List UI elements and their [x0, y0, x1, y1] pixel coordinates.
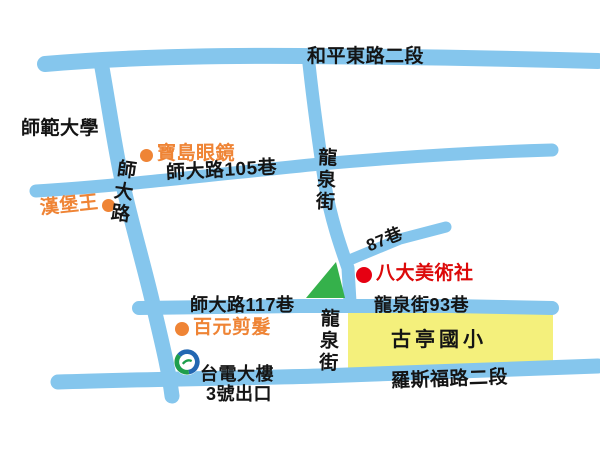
haircut-dot-icon	[175, 322, 189, 336]
road-label-lane117: 師大路117巷	[190, 296, 295, 315]
road-label-roosevelt: 羅斯福路二段	[391, 368, 509, 392]
road-label-longquan-south-vertical: 龍泉街	[319, 309, 341, 375]
map-graphics	[0, 0, 600, 450]
park-triangle	[306, 262, 345, 298]
place-label-metro-station: 台電大樓	[200, 365, 274, 384]
road-shida	[101, 62, 172, 396]
place-label-destination: 八大美術社	[376, 264, 474, 284]
place-label-haircut: 百元剪髮	[193, 318, 271, 338]
place-label-school: 古亭國小	[391, 330, 487, 351]
road-label-longquan93: 龍泉街93巷	[374, 296, 469, 315]
metro-exit-label: 3號出口	[206, 385, 272, 404]
glasses-shop-dot-icon	[140, 149, 153, 162]
hand-drawn-street-map: 和平東路二段 師範大學 寶島眼鏡 師大路105巷 漢堡王 師大路 龍泉街 87巷…	[0, 0, 600, 450]
road-label-heping: 和平東路二段	[307, 47, 424, 67]
road-label-longquan-north-vertical: 龍泉街	[315, 148, 338, 215]
metro-logo-icon	[173, 348, 201, 381]
place-label-university: 師範大學	[21, 119, 99, 139]
destination-dot-icon	[356, 267, 372, 283]
